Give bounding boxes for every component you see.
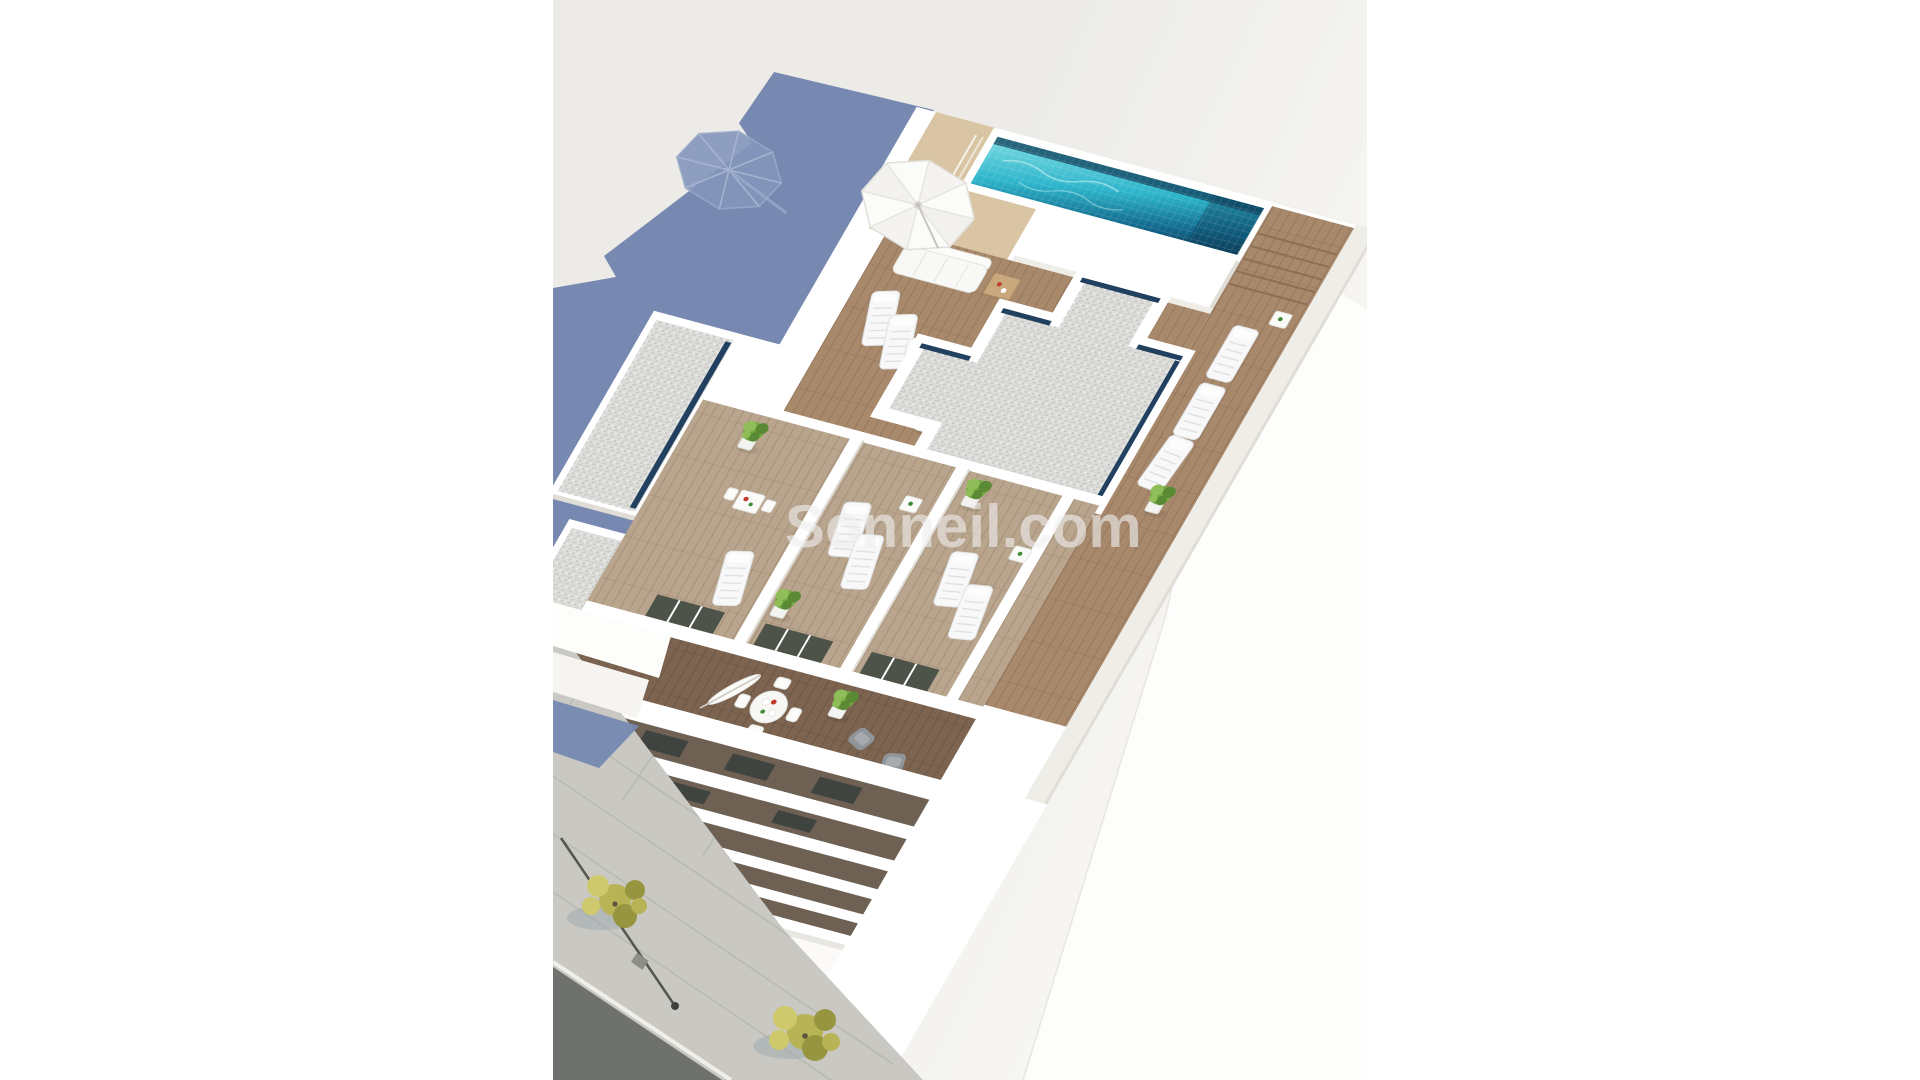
page: Sonneil.com	[0, 0, 1920, 1080]
render-scene	[553, 0, 1367, 1080]
render-photo: Sonneil.com	[553, 0, 1367, 1080]
